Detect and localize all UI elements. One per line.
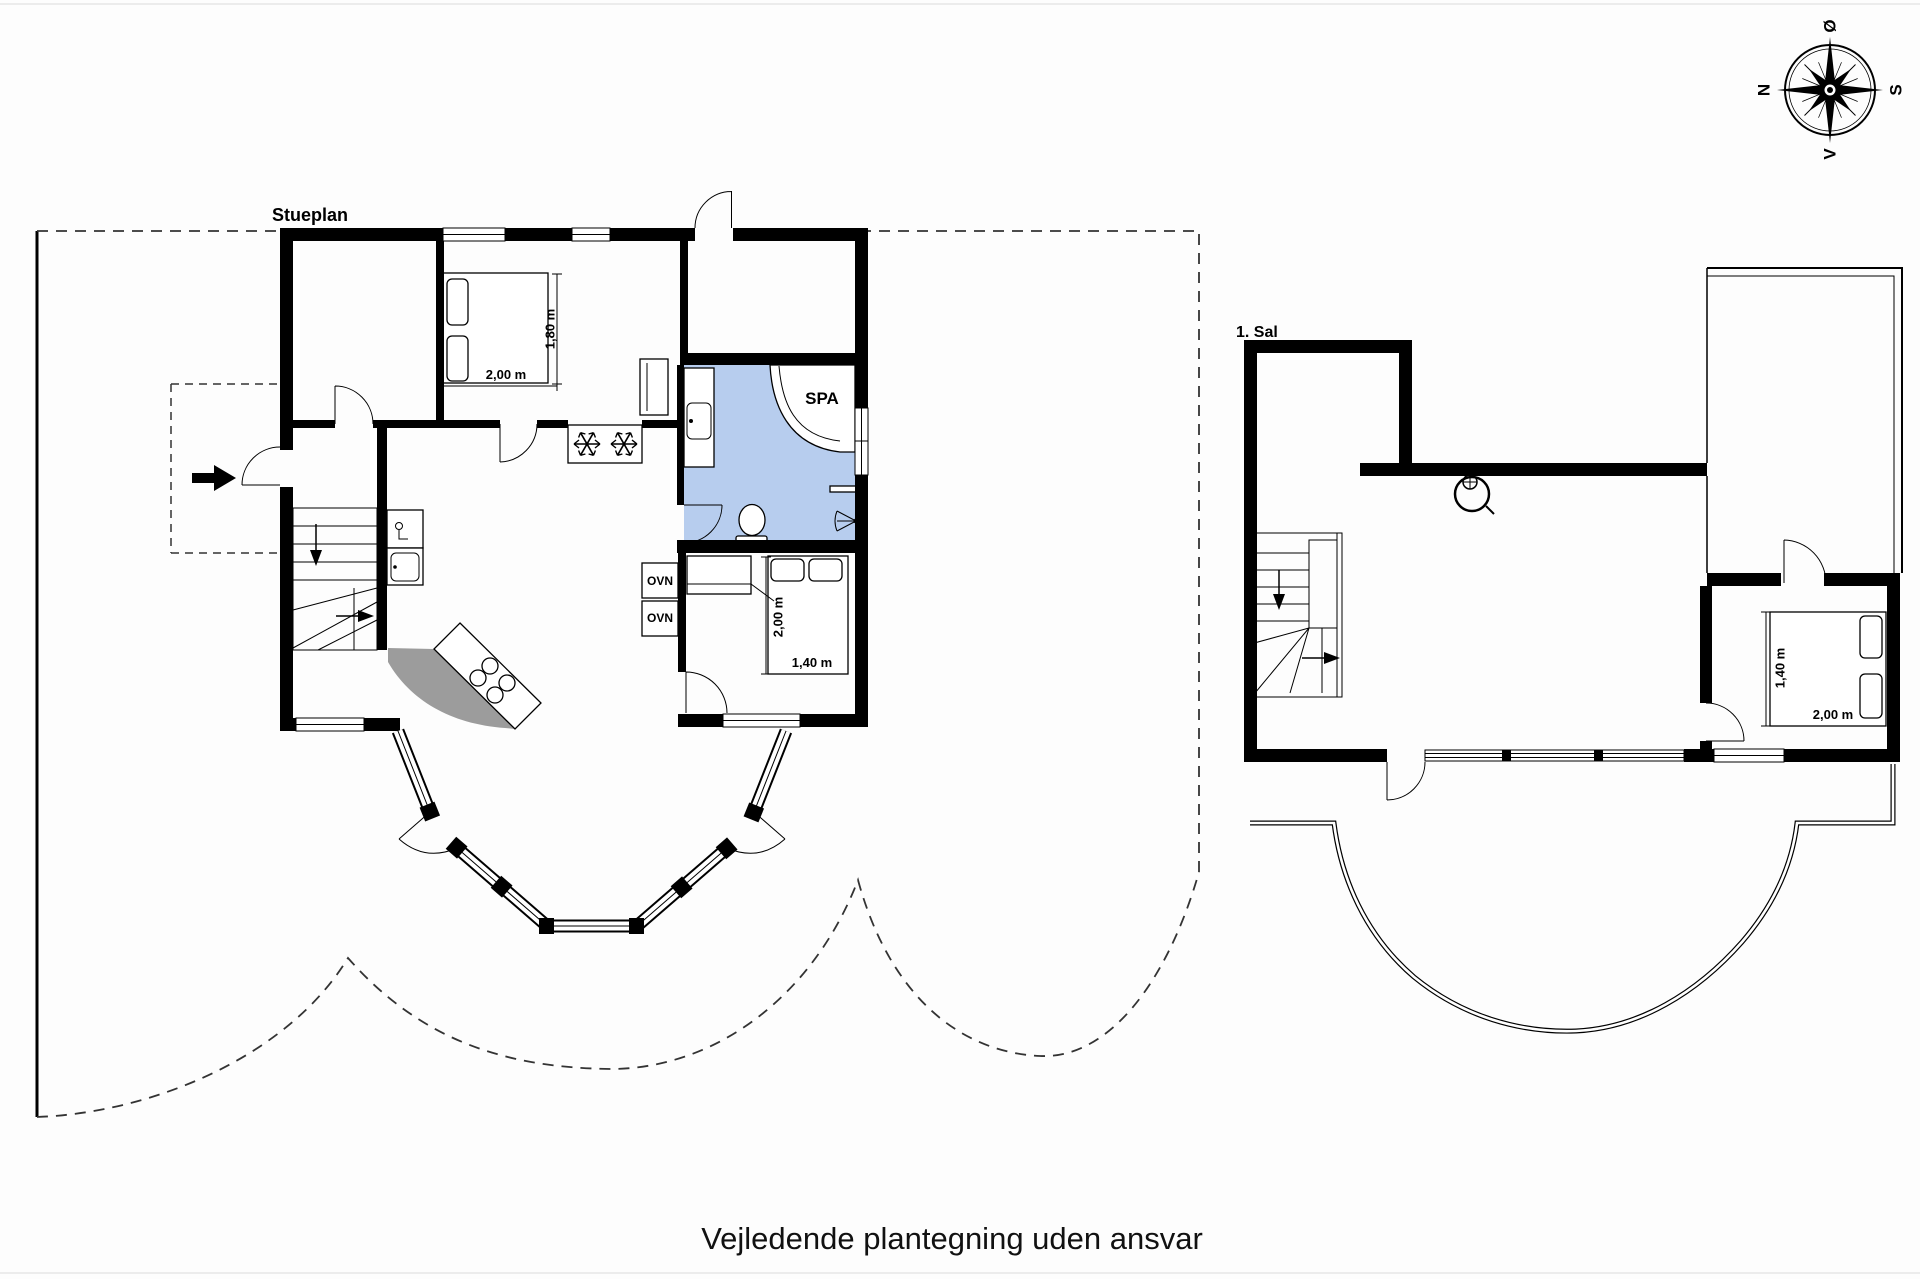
pillow [447, 279, 468, 325]
stairs-direction-arrow [358, 610, 374, 622]
window [723, 714, 800, 727]
staircase-ground [293, 508, 377, 650]
kitchen-sink-counter [387, 510, 423, 585]
disclaimer-text: Vejledende plantegning uden ansvar [701, 1221, 1203, 1256]
pillow [447, 336, 468, 381]
pillow [1860, 616, 1882, 658]
window [443, 228, 505, 241]
wood-stove-icon [1455, 475, 1494, 514]
floorplan-sheet: Ø N S V [0, 0, 1920, 1279]
first-floor-title: 1. Sal [1236, 324, 1278, 341]
terrace-door [1387, 762, 1425, 800]
vanity-sink [684, 368, 714, 467]
roof-outline [1707, 268, 1902, 573]
oven-upper-label: OVN [647, 574, 673, 588]
wardrobe-cabinet [640, 359, 668, 415]
cooktop-burner [470, 670, 486, 686]
bay-window [398, 731, 786, 934]
window-band [1425, 750, 1684, 761]
sheet-bottom-edge [0, 1272, 1920, 1274]
compass-rose-icon: Ø N S V [1755, 19, 1906, 159]
window [855, 408, 868, 475]
room-door [335, 386, 373, 424]
stairs-direction-arrow [1324, 652, 1340, 664]
compass-west-label: V [1821, 148, 1840, 160]
bath-shelf [830, 486, 857, 492]
double-bed: 2,00 m 1,80 m [443, 273, 562, 391]
compass-south-label: S [1887, 84, 1906, 95]
compass-east-label: Ø [1821, 19, 1840, 32]
site-boundary [37, 231, 1199, 1117]
staircase-first-floor [1247, 533, 1342, 697]
front-door-top [695, 191, 732, 228]
bedroom-door [1784, 540, 1826, 583]
bedroom1-door [500, 424, 537, 462]
boundary-bottom-scallops [37, 872, 1199, 1117]
first-floor-plan: 1,40 m 2,00 m [1236, 268, 1902, 1031]
cooktop-burner [499, 675, 515, 691]
bed-width-dimension: 1,80 m [543, 309, 558, 349]
freezer-cabinet [568, 425, 642, 463]
bed-length-dimension: 2,00 m [486, 367, 526, 382]
first-floor-terrace [1250, 764, 1893, 1031]
entry-door-left [242, 447, 280, 485]
first-floor-windows [1425, 749, 1784, 762]
oven-units: OVN OVN [642, 563, 678, 636]
window [296, 718, 364, 731]
compass-north-label: N [1755, 84, 1774, 96]
bedroom-side-door [1706, 703, 1744, 741]
small-bedroom-bed: 2,00 m 1,40 m [761, 556, 848, 674]
pillow [771, 559, 804, 581]
stairs-down-arrow [1273, 594, 1285, 610]
bed-width-dimension: 1,40 m [792, 655, 832, 670]
cooktop-burner [487, 687, 503, 703]
bed-length-dimension: 2,00 m [771, 597, 786, 637]
oven-lower-label: OVN [647, 611, 673, 625]
first-floor-bed: 1,40 m 2,00 m [1761, 612, 1886, 726]
stairs-down-arrow [310, 550, 322, 566]
bedroom-wardrobe [687, 556, 774, 601]
window [572, 228, 610, 241]
cooktop-burner [482, 658, 498, 674]
entrance-porch-dashed-outline [171, 384, 280, 553]
ground-floor-title: Stueplan [272, 205, 348, 225]
boundary-right-dash [868, 231, 1199, 872]
pillow [809, 559, 842, 581]
bed-length-dimension: 2,00 m [1813, 707, 1853, 722]
bedroom2-door [686, 672, 727, 713]
entrance-arrow-icon [192, 465, 236, 491]
pillow [1860, 674, 1882, 718]
sheet-top-edge [0, 3, 1920, 5]
spa-label: SPA [805, 389, 839, 408]
bed-width-dimension: 1,40 m [1773, 648, 1788, 688]
window [1714, 749, 1784, 762]
ground-floor-plan: OVN OVN 2,00 m 1,80 m [242, 191, 868, 934]
